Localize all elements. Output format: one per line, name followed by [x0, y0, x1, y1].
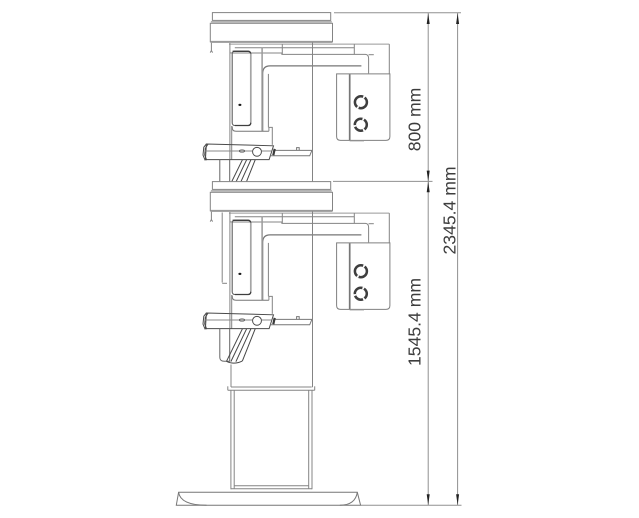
svg-text:800 mm: 800 mm: [405, 88, 425, 152]
svg-text:1545.4 mm: 1545.4 mm: [405, 278, 425, 366]
svg-text:2345.4 mm: 2345.4 mm: [440, 166, 460, 254]
